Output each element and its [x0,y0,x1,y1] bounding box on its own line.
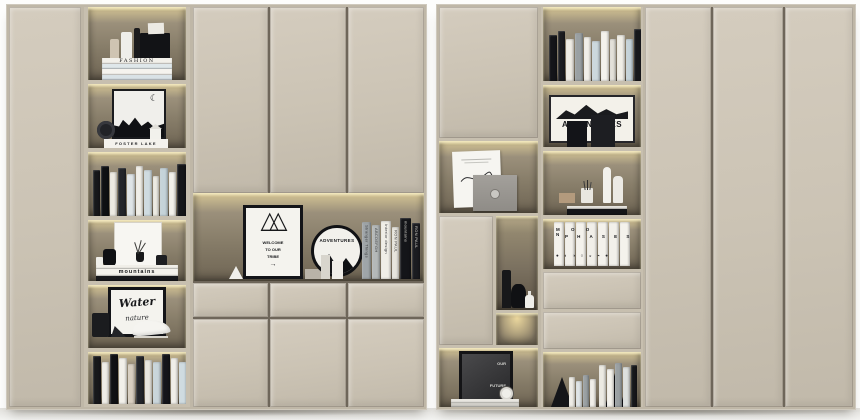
moon-phases-volume [609,222,619,266]
black-vase [103,249,116,266]
magazine-shelf [439,141,538,213]
book-spine [610,39,616,81]
book-spine [136,356,144,404]
white-pyramid [229,266,243,279]
book-spine [93,356,101,404]
book-spine [615,363,622,407]
emblem-icon [490,189,500,199]
crescent-moon-icon: ☾ [150,93,158,104]
book-row [93,164,186,216]
book-spine [617,35,625,81]
round-bottle [511,284,526,308]
book-spine: mountains [400,218,411,279]
sculpture-base [134,336,168,338]
lower-door [193,319,268,407]
book-stack [451,399,519,407]
teepee-line1: WELCOME [246,240,300,245]
water-poster-title: Water [111,294,164,311]
shelf-bookends [543,352,641,407]
pencil [587,180,588,190]
shelf-adventure-poster: ADVENTURES [543,85,641,147]
book-stack [567,206,627,215]
narrow-door [439,216,493,345]
black-book [567,121,587,147]
drawer [348,283,424,317]
book-spine [128,364,135,404]
shelf-books-upper [88,152,186,216]
book-spine-mountains: mountains [96,269,178,276]
monolith [332,261,343,279]
teepee-poster: △△ WELCOME TO OUR TRIBE → [243,205,303,279]
book-spine [558,31,565,81]
display-niche: △△ WELCOME TO OUR TRIBE → ADVENTURES Str… [193,193,424,281]
drawer [543,272,641,309]
tall-door [785,7,853,407]
teepee-icons: △△ [246,208,300,234]
book-spine [599,365,606,407]
book-spine [145,360,152,404]
white-vase [525,295,534,308]
book-spine [119,358,127,404]
book-spine: RON PAUL [392,227,399,279]
right-colA: OUR FUTURE [439,7,538,407]
book-spine [631,365,637,407]
branch-art [114,222,162,266]
tall-door [713,7,783,407]
pencil-cup [581,188,593,203]
book-row [599,363,637,407]
upper-door [193,7,268,193]
candle [110,39,119,59]
book-spine: RON PAUL [412,223,420,279]
book-spine [136,166,143,216]
book-spine [169,172,176,216]
upper-door [439,7,538,138]
shelf-desk-objects [543,151,641,215]
book-spine [153,362,161,404]
display-books: Stranger ThingsABCDEFGHInterior designRO… [362,218,420,279]
shelf-books-lower [88,352,186,404]
book-spine [102,75,172,80]
future-poster-shelf: OUR FUTURE [439,348,538,407]
right-cabinet-unit: OUR FUTURE ADVENTURES [436,4,856,410]
book-spine [153,176,159,216]
white-vase-tall [603,167,611,203]
tablet [92,313,109,337]
book-spine [110,354,118,404]
book-spine: Interior design [381,221,391,279]
arrow-icon: → [246,261,300,268]
book-spine [144,170,152,216]
right-door-section [645,7,853,407]
shelf-candles-fashion: FASHION [88,7,186,80]
book-spine [590,379,596,407]
moon-phases-title-2: P H A S E S [565,234,635,239]
book-spine [127,174,135,216]
black-book [591,115,615,147]
book-row [549,29,641,81]
tall-door [645,7,711,407]
book-spine [177,164,186,216]
left-shelf-column: FASHION ☾ FOSTER LAKE [84,7,190,407]
book-spine [102,362,109,404]
book-spine [592,41,600,81]
book-spine [607,369,614,407]
book-spine [451,403,519,407]
book-spine [93,170,100,216]
book-spine [623,367,630,407]
book-spine [569,377,575,407]
book-spine [583,375,589,407]
upper-door [348,7,424,193]
book-spine [160,168,168,216]
book-spine [549,35,557,81]
drawer [543,312,641,349]
book-spine: ABCDEFGH [372,225,380,279]
book-spine [162,354,170,404]
book-spine: Stranger Things [362,222,371,279]
teepee-line2: TO OUR [246,247,300,252]
book-spine [101,166,109,216]
teepee-line3: TRIBE [246,254,300,259]
book-spine [575,33,583,81]
left-unit-door-section: △△ WELCOME TO OUR TRIBE → ADVENTURES Str… [193,7,424,407]
lower-door [270,319,346,407]
future-poster-line1: OUR [497,361,506,366]
book-spine [576,381,582,407]
book-spine [118,168,126,216]
shelf-branch-art: mountains [88,220,186,281]
pencil [583,181,585,190]
book-stack-fashion: FASHION [102,58,172,80]
shelf-moon-art: ☾ FOSTER LAKE [88,84,186,148]
black-box [140,33,170,59]
right-colB: ADVENTURES [541,7,643,407]
shelf-water-poster: Water nature [88,285,186,348]
left-tall-door [9,7,81,407]
adventures-sign-text: ADVENTURES [314,238,360,243]
book-spine [567,209,627,215]
moon-phases-volume [620,222,630,266]
wood-box [559,193,575,203]
vase [121,32,132,59]
lower-door [348,319,424,407]
house-figurine [150,129,161,139]
furniture-render: FASHION ☾ FOSTER LAKE [0,0,860,420]
alarm-clock [97,121,115,139]
magazine-line [461,158,491,160]
book-spine [601,31,609,81]
letterboard: FOSTER LAKE [104,139,168,148]
drawer [193,283,268,317]
book-row [569,375,596,407]
book-spine [171,358,178,404]
book-row [93,354,186,404]
drawer [270,283,346,317]
bottle-niche [496,216,538,310]
book-spine [110,172,117,216]
lit-cubby [496,313,538,345]
card [148,23,164,35]
book-stack-mountains: mountains [96,265,178,281]
book-spine [626,39,633,81]
book-spine [634,29,641,81]
moon-phase-icons: ●◐◑○◒◓● [556,253,628,258]
magazine-line [464,162,488,164]
book-spine [179,362,186,404]
book-spine [584,37,591,81]
book-spine [566,39,574,81]
shelf-books-top [543,7,641,81]
tall-bottle [502,270,511,308]
grey-box [473,175,517,211]
book-spine [96,276,178,281]
monolith [321,255,330,279]
white-vase [613,176,623,203]
upper-door [270,7,346,193]
left-cabinet-unit: FASHION ☾ FOSTER LAKE [6,4,427,410]
shelf-moon-phases: M O O N P H A S E S ●◐◑○◒◓● [543,219,641,269]
vase-neck [528,291,531,295]
